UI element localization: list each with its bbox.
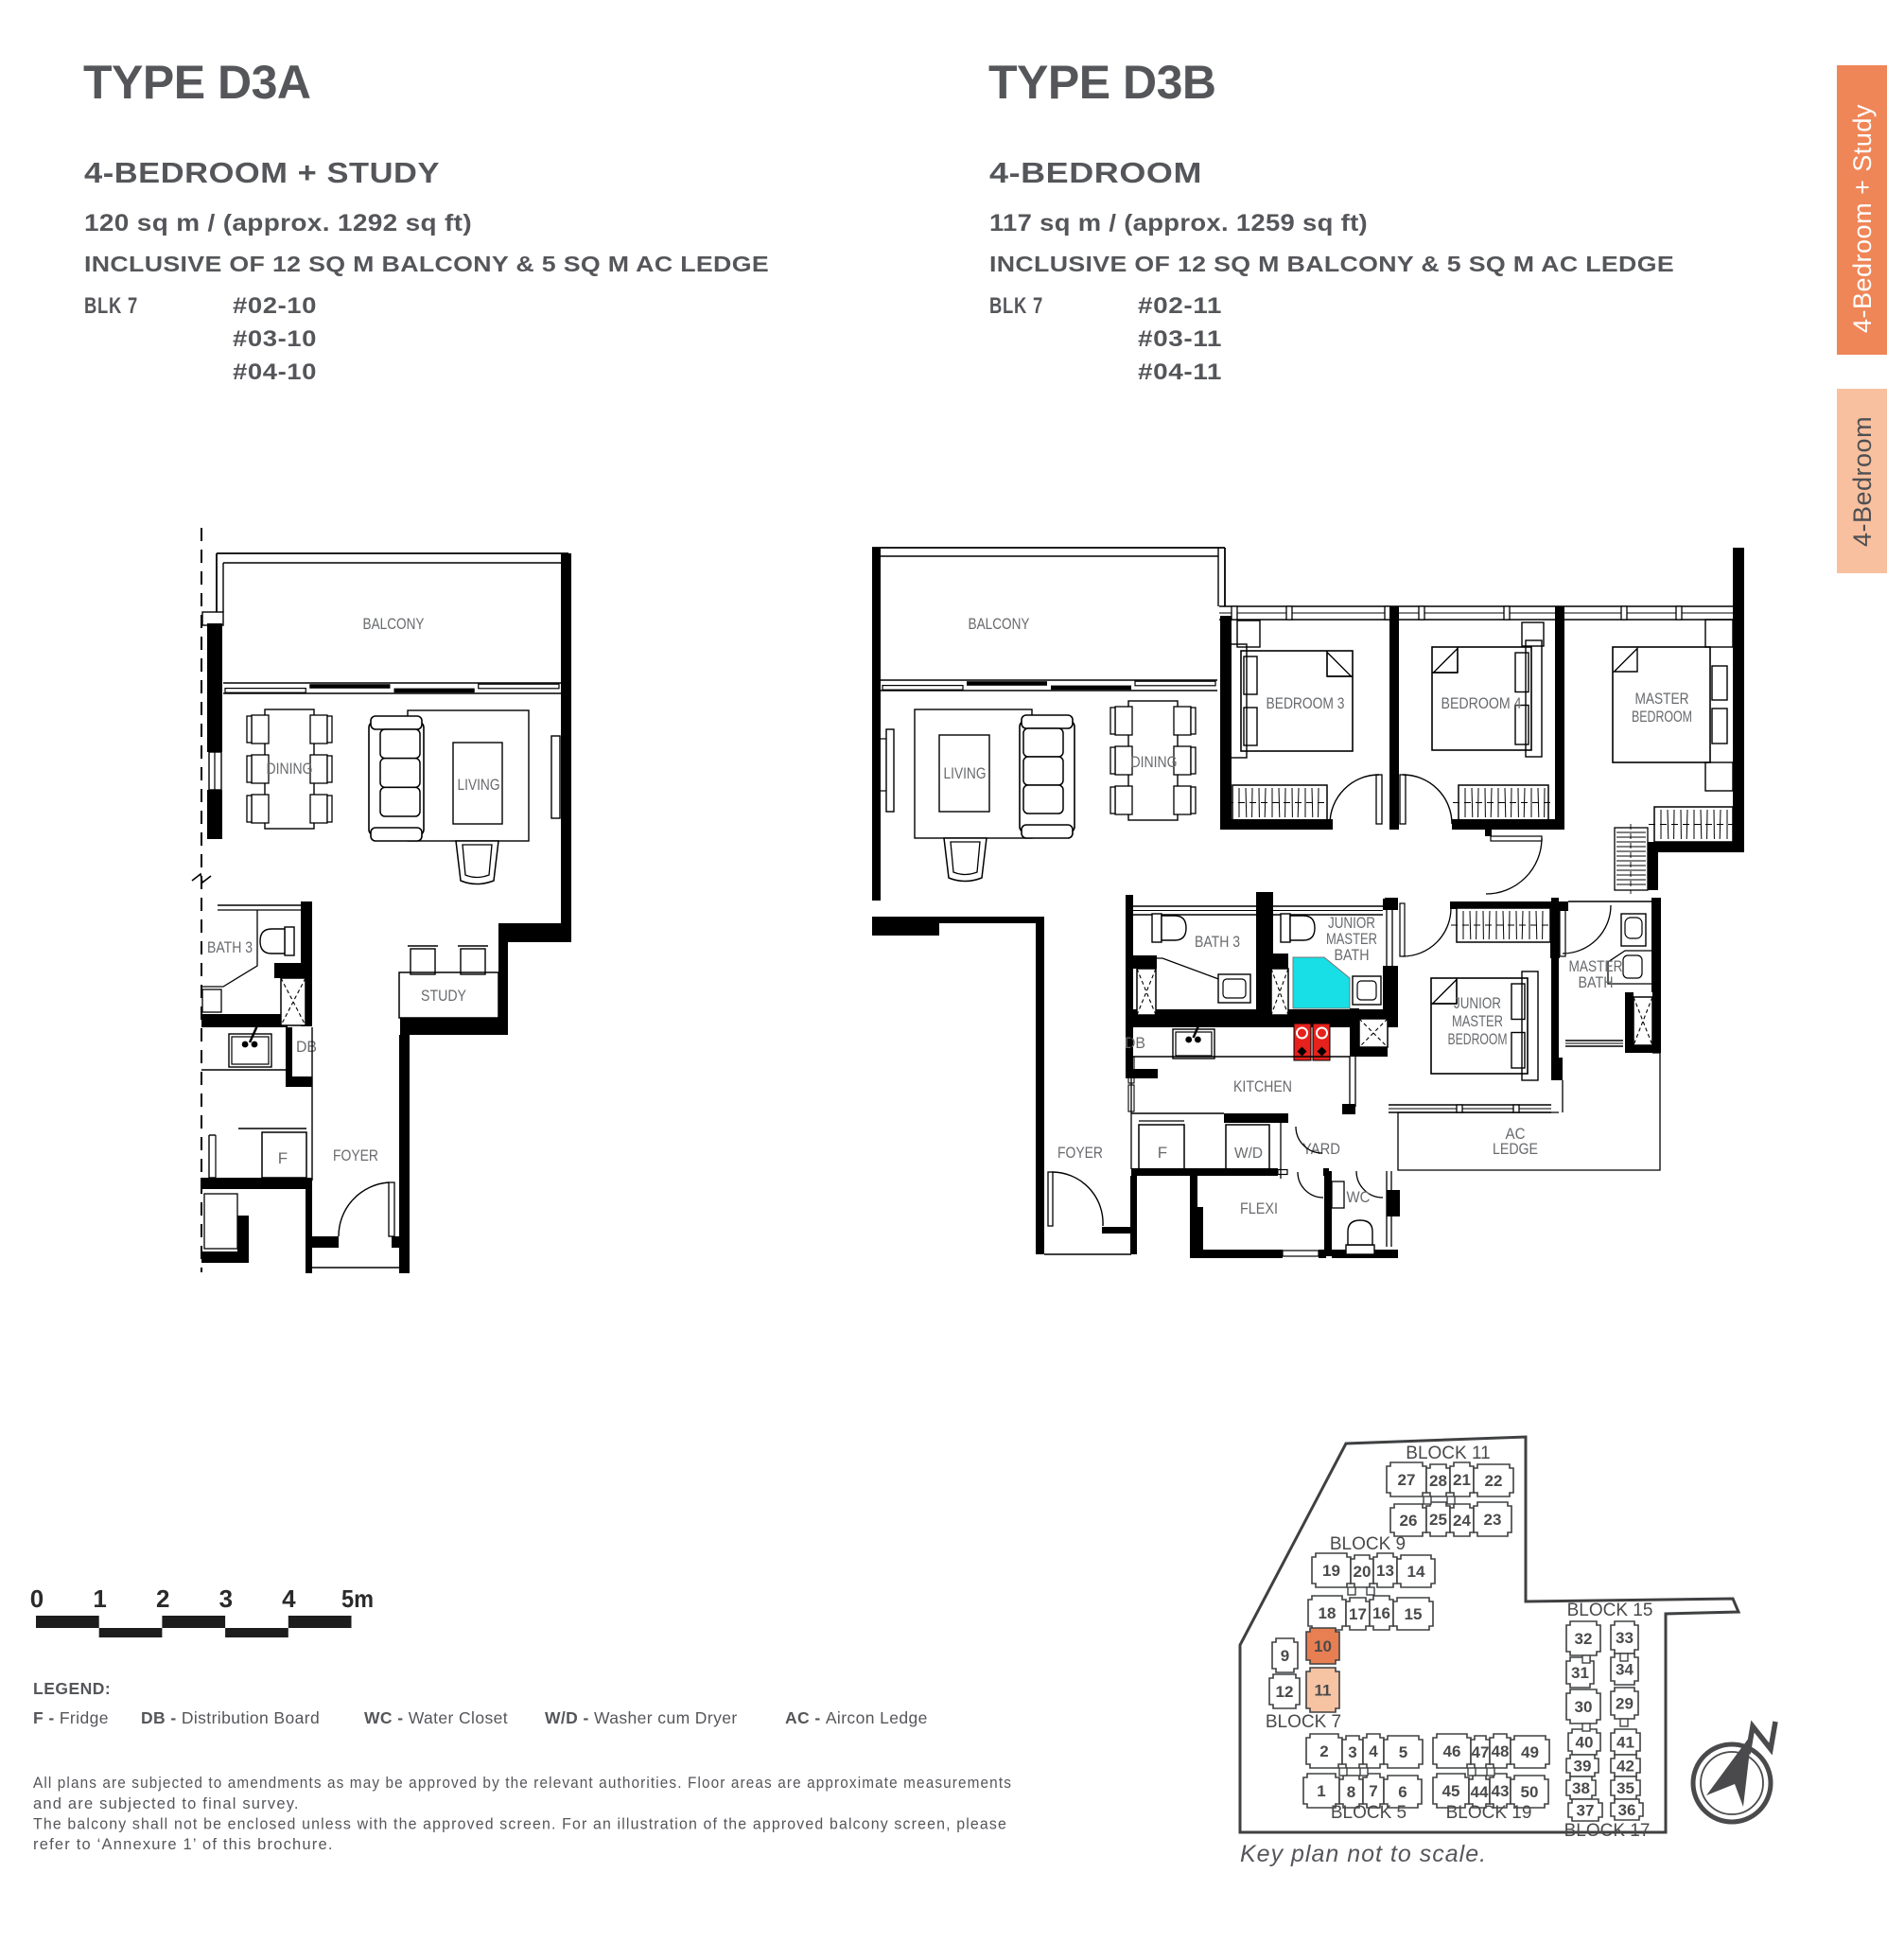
svg-text:3: 3 bbox=[1348, 1743, 1356, 1761]
svg-text:DB - Distribution Board: DB - Distribution Board bbox=[141, 1708, 320, 1727]
svg-text:LEGEND:: LEGEND: bbox=[33, 1679, 111, 1698]
svg-text:25: 25 bbox=[1429, 1511, 1447, 1529]
svg-text:30: 30 bbox=[1575, 1698, 1593, 1716]
svg-text:TYPE D3A: TYPE D3A bbox=[83, 56, 311, 109]
svg-text:BALCONY: BALCONY bbox=[363, 615, 425, 633]
svg-text:4-Bedroom + Study: 4-Bedroom + Study bbox=[1848, 104, 1877, 333]
svg-text:5: 5 bbox=[1399, 1743, 1407, 1761]
svg-text:LEDGE: LEDGE bbox=[1493, 1140, 1538, 1158]
svg-text:39: 39 bbox=[1574, 1758, 1592, 1776]
svg-text:BEDROOM 3: BEDROOM 3 bbox=[1267, 694, 1345, 712]
svg-text:MASTER: MASTER bbox=[1452, 1012, 1503, 1030]
svg-text:BEDROOM: BEDROOM bbox=[1632, 708, 1692, 726]
svg-text:JUNIOR: JUNIOR bbox=[1454, 994, 1501, 1012]
svg-text:4-Bedroom: 4-Bedroom bbox=[1848, 416, 1877, 547]
svg-text:35: 35 bbox=[1616, 1779, 1634, 1797]
svg-text:2: 2 bbox=[156, 1584, 169, 1613]
svg-text:F: F bbox=[278, 1149, 288, 1167]
svg-text:10: 10 bbox=[1314, 1637, 1332, 1655]
svg-text:33: 33 bbox=[1616, 1629, 1634, 1647]
svg-text:DB: DB bbox=[296, 1038, 317, 1056]
svg-text:8: 8 bbox=[1347, 1783, 1355, 1801]
svg-text:#02-10: #02-10 bbox=[233, 293, 317, 319]
svg-text:49: 49 bbox=[1521, 1743, 1539, 1761]
svg-text:WC - Water Closet: WC - Water Closet bbox=[364, 1708, 508, 1727]
svg-text:11: 11 bbox=[1315, 1682, 1332, 1700]
svg-text:F - Fridge: F - Fridge bbox=[33, 1708, 109, 1727]
svg-text:19: 19 bbox=[1322, 1562, 1340, 1580]
svg-text:42: 42 bbox=[1616, 1758, 1634, 1776]
svg-text:BLOCK 17: BLOCK 17 bbox=[1564, 1821, 1651, 1841]
svg-text:26: 26 bbox=[1400, 1512, 1418, 1530]
svg-text:DB: DB bbox=[1125, 1034, 1145, 1052]
svg-text:#03-10: #03-10 bbox=[233, 326, 317, 352]
svg-text:9: 9 bbox=[1281, 1647, 1289, 1665]
svg-text:LIVING: LIVING bbox=[944, 764, 987, 782]
svg-text:BLK 7: BLK 7 bbox=[84, 293, 138, 319]
svg-text:18: 18 bbox=[1319, 1604, 1337, 1622]
svg-text:BATH 3: BATH 3 bbox=[207, 938, 253, 956]
svg-text:37: 37 bbox=[1577, 1802, 1595, 1820]
svg-text:and are subjected to final sur: and are subjected to final survey. bbox=[33, 1795, 300, 1812]
svg-text:BLOCK 5: BLOCK 5 bbox=[1331, 1803, 1407, 1823]
svg-text:1: 1 bbox=[93, 1584, 106, 1613]
svg-text:5m: 5m bbox=[341, 1584, 374, 1613]
svg-text:TYPE D3B: TYPE D3B bbox=[988, 56, 1216, 109]
svg-text:BLK 7: BLK 7 bbox=[989, 293, 1043, 319]
svg-text:36: 36 bbox=[1618, 1801, 1636, 1819]
svg-text:22: 22 bbox=[1485, 1472, 1503, 1490]
svg-text:The balcony shall not be enclo: The balcony shall not be enclosed unless… bbox=[33, 1816, 1007, 1833]
svg-text:BLOCK 7: BLOCK 7 bbox=[1266, 1712, 1341, 1732]
svg-text:3: 3 bbox=[219, 1584, 233, 1613]
svg-text:#02-11: #02-11 bbox=[1138, 293, 1222, 319]
svg-text:4: 4 bbox=[282, 1584, 296, 1613]
svg-text:INCLUSIVE OF 12 SQ M BALCONY &: INCLUSIVE OF 12 SQ M BALCONY & 5 SQ M AC… bbox=[84, 252, 769, 276]
svg-text:45: 45 bbox=[1442, 1782, 1460, 1800]
svg-text:23: 23 bbox=[1484, 1511, 1502, 1529]
svg-text:15: 15 bbox=[1405, 1605, 1423, 1623]
svg-text:BATH 3: BATH 3 bbox=[1195, 933, 1240, 951]
svg-text:STUDY: STUDY bbox=[421, 987, 466, 1005]
svg-text:refer to ‘Annexure 1’ of this: refer to ‘Annexure 1’ of this brochure. bbox=[33, 1836, 334, 1853]
svg-text:7: 7 bbox=[1369, 1782, 1377, 1800]
svg-text:34: 34 bbox=[1616, 1661, 1634, 1679]
svg-text:FLEXI: FLEXI bbox=[1240, 1199, 1278, 1217]
svg-text:1: 1 bbox=[1317, 1782, 1325, 1800]
svg-text:47: 47 bbox=[1472, 1743, 1490, 1761]
svg-text:41: 41 bbox=[1616, 1734, 1634, 1752]
svg-text:All plans are subjected to ame: All plans are subjected to amendments as… bbox=[33, 1775, 1012, 1792]
svg-text:40: 40 bbox=[1576, 1734, 1594, 1752]
svg-text:BALCONY: BALCONY bbox=[969, 615, 1030, 633]
svg-text:KITCHEN: KITCHEN bbox=[1233, 1077, 1292, 1095]
svg-text:6: 6 bbox=[1398, 1783, 1407, 1801]
svg-text:DINING: DINING bbox=[1131, 753, 1178, 771]
svg-text:46: 46 bbox=[1443, 1742, 1461, 1760]
svg-text:WC: WC bbox=[1347, 1188, 1371, 1206]
svg-text:29: 29 bbox=[1616, 1695, 1634, 1713]
svg-text:43: 43 bbox=[1492, 1782, 1510, 1800]
svg-text:50: 50 bbox=[1521, 1783, 1539, 1801]
svg-text:27: 27 bbox=[1398, 1471, 1416, 1489]
svg-text:44: 44 bbox=[1471, 1783, 1489, 1801]
svg-text:12: 12 bbox=[1276, 1683, 1294, 1701]
svg-text:13: 13 bbox=[1376, 1562, 1394, 1580]
svg-text:BLOCK 9: BLOCK 9 bbox=[1330, 1534, 1406, 1554]
svg-text:MASTER: MASTER bbox=[1635, 690, 1689, 708]
svg-text:4-BEDROOM + STUDY: 4-BEDROOM + STUDY bbox=[84, 156, 440, 189]
svg-text:Key plan not to scale.: Key plan not to scale. bbox=[1240, 1841, 1487, 1867]
svg-text:28: 28 bbox=[1429, 1472, 1447, 1490]
svg-text:DINING: DINING bbox=[267, 760, 313, 778]
svg-text:#03-11: #03-11 bbox=[1138, 326, 1222, 352]
svg-text:BLOCK 11: BLOCK 11 bbox=[1406, 1444, 1490, 1463]
svg-text:20: 20 bbox=[1354, 1563, 1372, 1581]
svg-text:38: 38 bbox=[1572, 1779, 1590, 1797]
svg-text:0: 0 bbox=[30, 1584, 44, 1613]
svg-text:#04-10: #04-10 bbox=[233, 359, 317, 385]
svg-text:117 sq m / (approx. 1259 sq ft: 117 sq m / (approx. 1259 sq ft) bbox=[989, 210, 1368, 236]
svg-text:2: 2 bbox=[1319, 1742, 1328, 1760]
svg-text:31: 31 bbox=[1571, 1664, 1589, 1682]
svg-text:FOYER: FOYER bbox=[1057, 1144, 1103, 1162]
svg-text:LIVING: LIVING bbox=[458, 776, 500, 794]
svg-text:32: 32 bbox=[1575, 1630, 1593, 1648]
svg-text:W/D: W/D bbox=[1234, 1146, 1263, 1162]
svg-text:16: 16 bbox=[1372, 1604, 1390, 1622]
svg-text:BLOCK 15: BLOCK 15 bbox=[1567, 1601, 1653, 1620]
svg-text:48: 48 bbox=[1492, 1742, 1510, 1760]
svg-text:FOYER: FOYER bbox=[333, 1146, 378, 1164]
svg-text:120 sq m / (approx. 1292 sq ft: 120 sq m / (approx. 1292 sq ft) bbox=[84, 210, 472, 236]
svg-text:17: 17 bbox=[1349, 1605, 1367, 1623]
svg-text:BATH: BATH bbox=[1335, 946, 1370, 964]
svg-text:21: 21 bbox=[1453, 1471, 1471, 1489]
svg-text:AC - Aircon Ledge: AC - Aircon Ledge bbox=[785, 1708, 928, 1727]
svg-text:4-BEDROOM: 4-BEDROOM bbox=[989, 156, 1202, 189]
svg-text:INCLUSIVE OF 12 SQ M BALCONY &: INCLUSIVE OF 12 SQ M BALCONY & 5 SQ M AC… bbox=[989, 252, 1674, 276]
svg-text:4: 4 bbox=[1369, 1742, 1378, 1760]
svg-text:F: F bbox=[1158, 1144, 1167, 1162]
svg-text:BLOCK 19: BLOCK 19 bbox=[1446, 1803, 1532, 1823]
svg-text:24: 24 bbox=[1453, 1512, 1471, 1530]
svg-text:BEDROOM 4: BEDROOM 4 bbox=[1441, 694, 1522, 712]
svg-text:BEDROOM: BEDROOM bbox=[1448, 1030, 1508, 1048]
svg-text:BATH: BATH bbox=[1579, 973, 1614, 991]
svg-text:#04-11: #04-11 bbox=[1138, 359, 1222, 385]
svg-text:W/D - Washer cum Dryer: W/D - Washer cum Dryer bbox=[545, 1708, 738, 1727]
svg-text:14: 14 bbox=[1407, 1563, 1425, 1581]
